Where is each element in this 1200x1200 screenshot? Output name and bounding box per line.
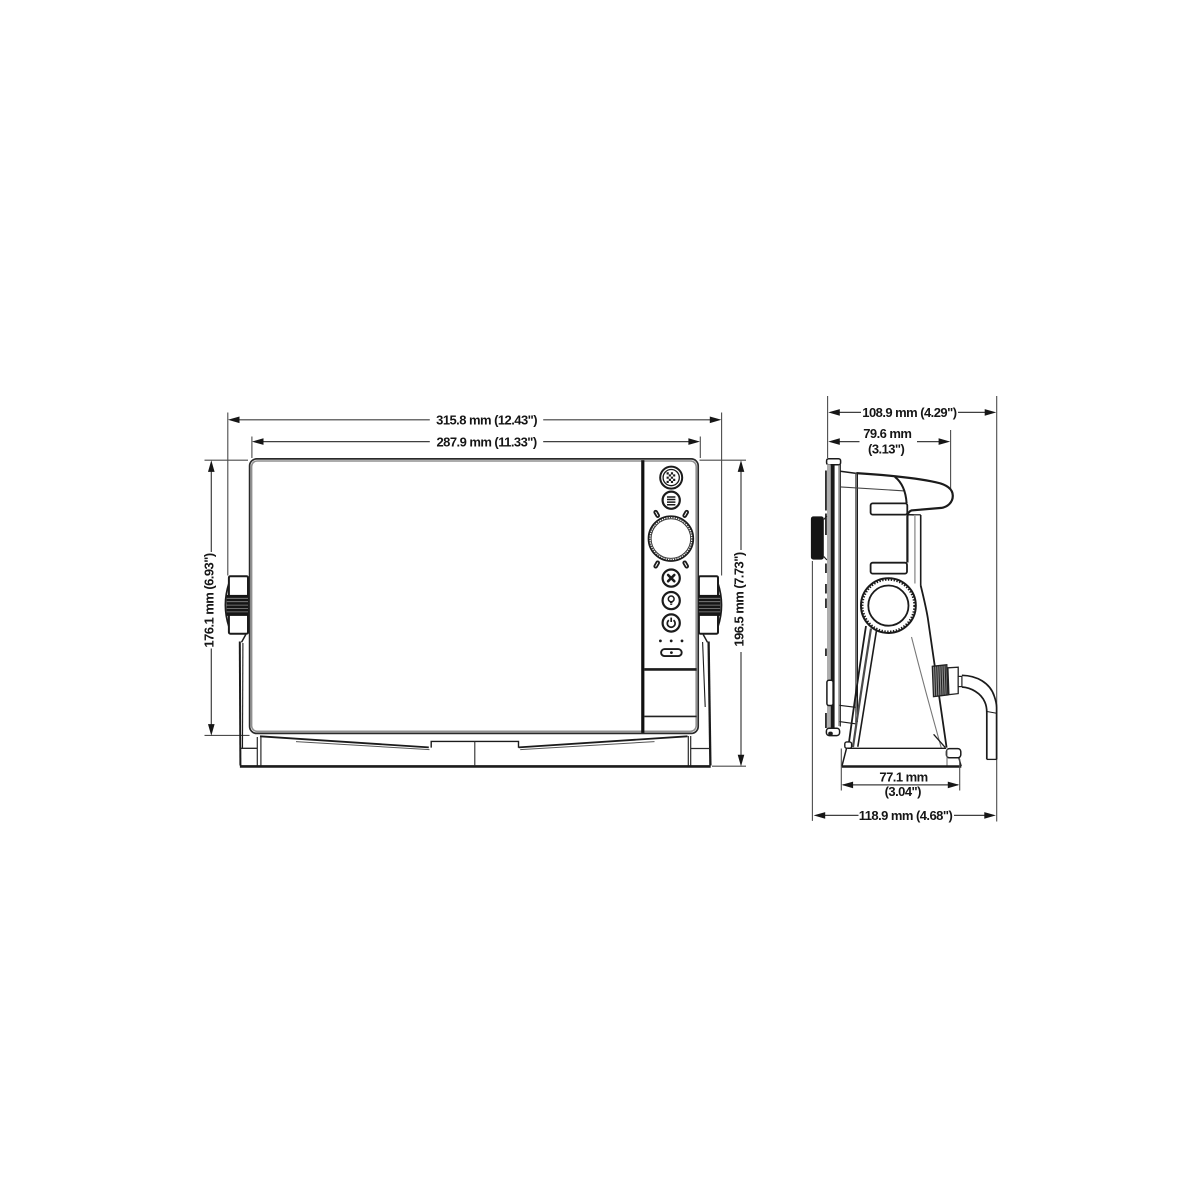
svg-text:79.6 mm: 79.6 mm: [863, 426, 911, 441]
svg-text:315.8 mm (12.43"): 315.8 mm (12.43"): [436, 413, 537, 428]
svg-text:287.9 mm (11.33"): 287.9 mm (11.33"): [437, 434, 537, 449]
svg-text:(3.04"): (3.04"): [885, 784, 921, 799]
svg-text:(3.13"): (3.13"): [868, 442, 904, 457]
svg-text:77.1 mm: 77.1 mm: [879, 769, 927, 784]
svg-text:118.9 mm (4.68"): 118.9 mm (4.68"): [859, 808, 953, 823]
svg-text:176.1 mm (6.93"): 176.1 mm (6.93"): [201, 553, 216, 647]
svg-text:108.9 mm (4.29"): 108.9 mm (4.29"): [862, 405, 956, 420]
svg-text:196.5 mm (7.73"): 196.5 mm (7.73"): [732, 552, 747, 646]
